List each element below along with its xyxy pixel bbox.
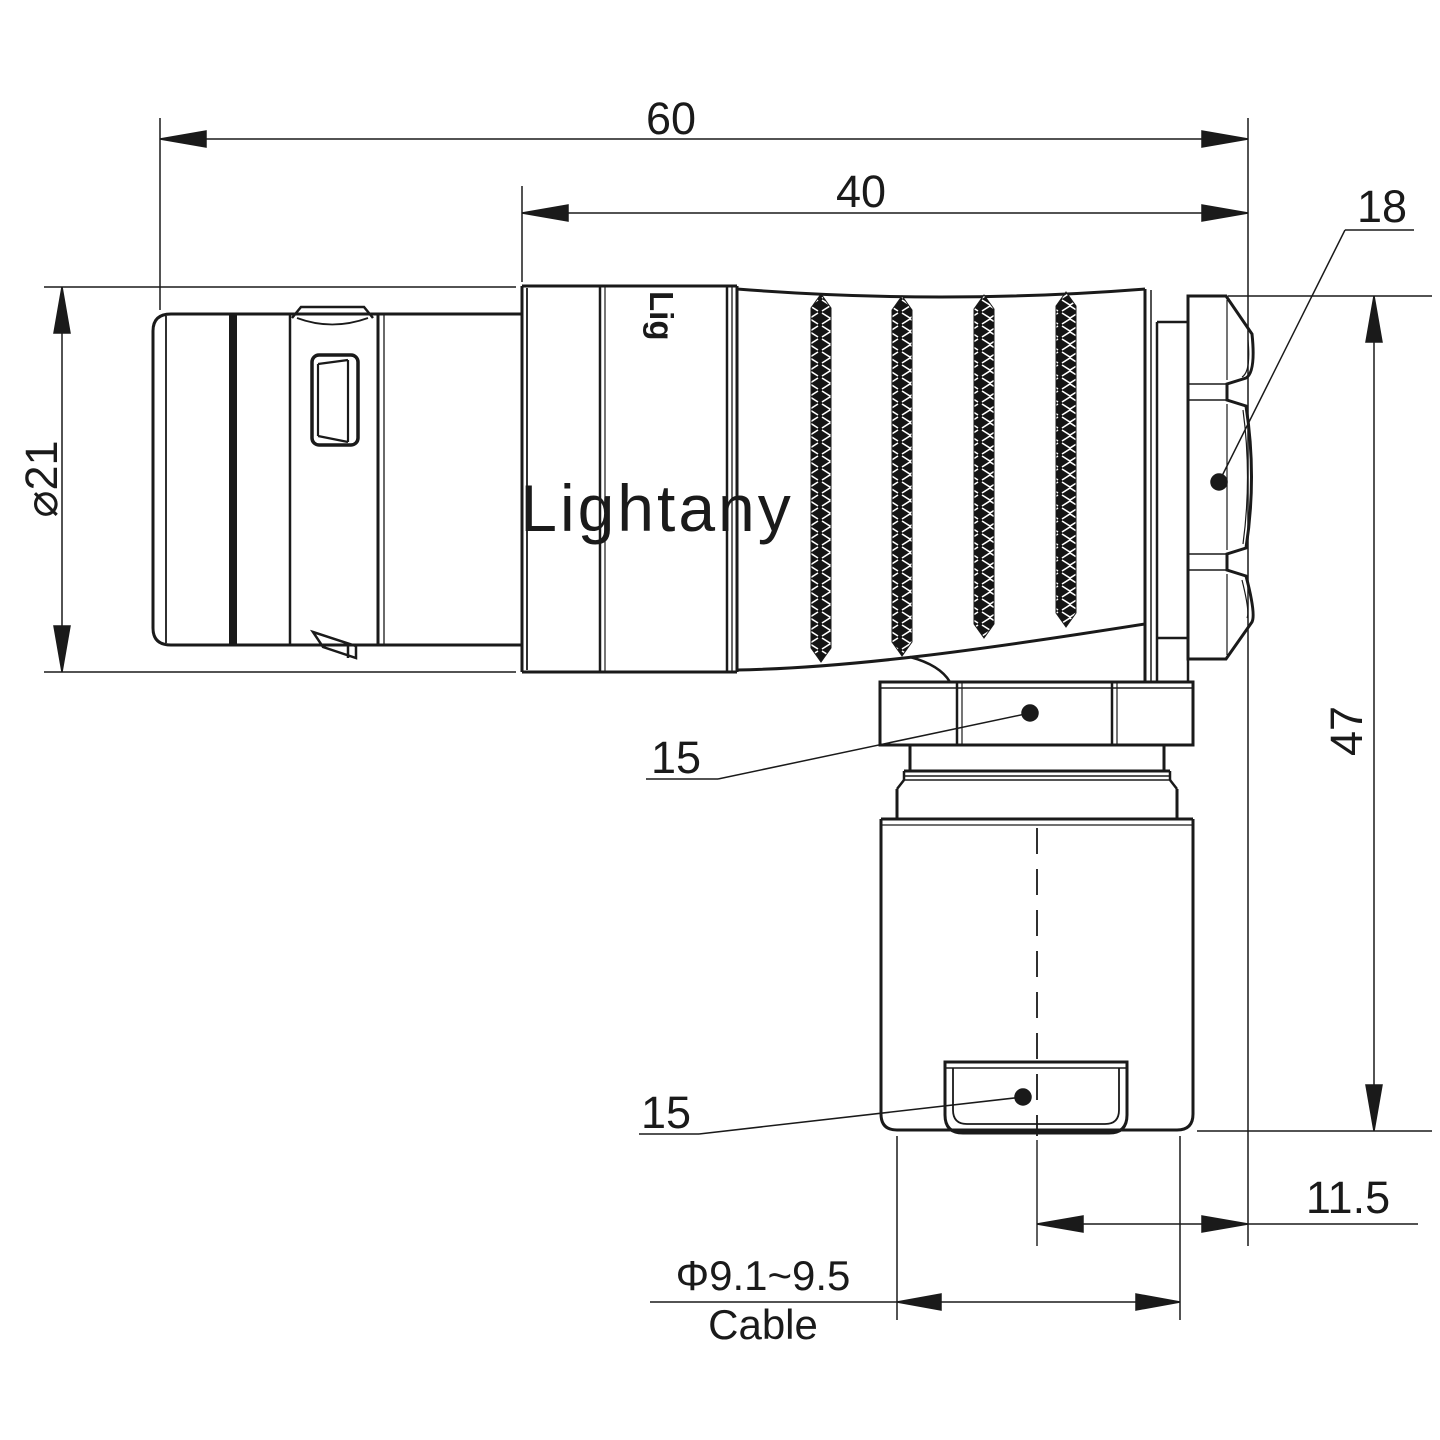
shell-engraving-text: Lig bbox=[643, 291, 680, 340]
knurl-strip bbox=[1056, 292, 1076, 627]
dim-15-clamp-label: 15 bbox=[641, 1087, 691, 1138]
dim-18-label: 18 bbox=[1357, 181, 1407, 232]
leader-dot-15-coupling bbox=[1022, 705, 1038, 721]
dimension-47 bbox=[1197, 296, 1432, 1131]
dim-60-label: 60 bbox=[646, 93, 696, 144]
dimension-dia21 bbox=[44, 287, 516, 672]
callout-15-clamp bbox=[639, 1089, 1031, 1134]
rear-shell bbox=[153, 307, 522, 658]
leader-dot-18 bbox=[1211, 474, 1227, 490]
cable-diameter-label: Φ9.1~9.5 bbox=[676, 1252, 851, 1299]
elbow-coupling-nut bbox=[880, 657, 1193, 819]
knurl-strip bbox=[811, 294, 831, 662]
connector-drawing-svg: Lightany bbox=[0, 0, 1440, 1440]
callout-15-coupling bbox=[646, 705, 1038, 779]
knurl-strip bbox=[974, 295, 994, 638]
knurled-sleeve bbox=[737, 286, 1151, 682]
latch-window bbox=[312, 355, 358, 445]
dim-11-5-label: 11.5 bbox=[1306, 1172, 1390, 1223]
knurl-strip bbox=[892, 296, 912, 656]
drawing-geometry bbox=[44, 118, 1432, 1320]
cable-clamp bbox=[945, 1062, 1127, 1133]
shell-seam-band bbox=[229, 314, 237, 645]
dim-47-label: 47 bbox=[1321, 706, 1372, 756]
drawing-canvas: Lightany bbox=[0, 0, 1440, 1440]
callout-18 bbox=[1211, 230, 1414, 490]
leader-dot-15-clamp bbox=[1015, 1089, 1031, 1105]
watermark-text: Lightany bbox=[520, 471, 794, 545]
washer bbox=[1157, 322, 1188, 682]
dim-dia21-label: ⌀21 bbox=[16, 440, 67, 517]
cable-caption-label: Cable bbox=[708, 1301, 818, 1348]
dim-40-label: 40 bbox=[836, 166, 886, 217]
dim-15-coupling-label: 15 bbox=[651, 732, 701, 783]
dimension-labels: 60 40 ⌀21 47 18 15 15 11.5 Φ9.1~9.5 Cabl… bbox=[16, 93, 1407, 1348]
